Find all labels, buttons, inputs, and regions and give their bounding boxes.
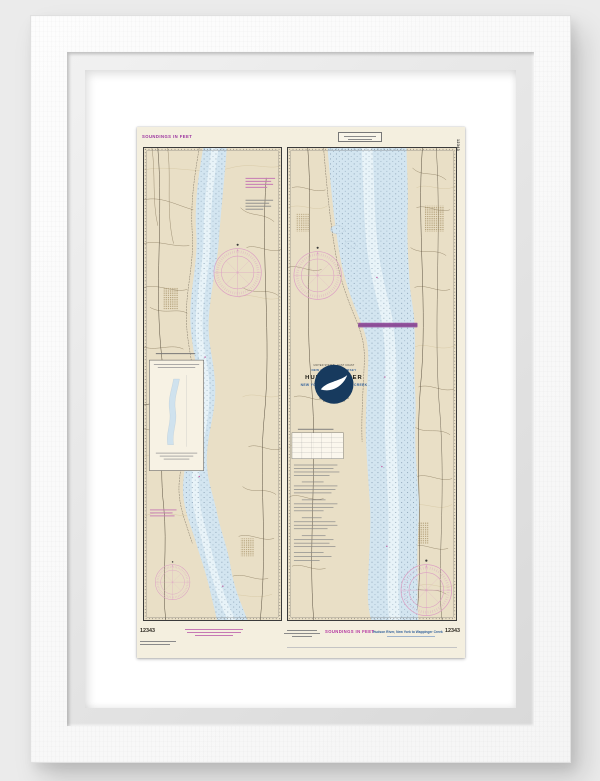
soundings-note-top: SOUNDINGS IN FEET <box>142 134 192 139</box>
river-map-left <box>144 148 281 620</box>
inset-map <box>149 353 203 471</box>
title-block: UNITED STATES - EAST COAST NEW YORK - NE… <box>296 364 372 405</box>
town-area <box>424 206 444 232</box>
chart-print: SOUNDINGS IN FEET 12343 <box>137 127 465 658</box>
chart-number-left: 12343 <box>140 628 155 634</box>
town-area <box>241 538 255 556</box>
product-background: SOUNDINGS IN FEET 12343 <box>0 0 600 781</box>
tide-table <box>292 429 343 459</box>
chart-panel-left <box>143 147 282 621</box>
bridge-band <box>358 323 417 328</box>
chart-panel-right: UNITED STATES - EAST COAST NEW YORK - NE… <box>287 147 457 621</box>
stock-label-box <box>338 132 382 142</box>
town-area <box>164 287 179 309</box>
noaa-logo-icon <box>296 364 372 405</box>
chart-title-bottom: Hudson River, New York to Wappinger Cree… <box>373 630 443 634</box>
town-area <box>296 214 310 232</box>
chart-number-right: 12343 <box>445 628 460 634</box>
soundings-label-bottom: SOUNDINGS IN FEET <box>325 629 374 634</box>
